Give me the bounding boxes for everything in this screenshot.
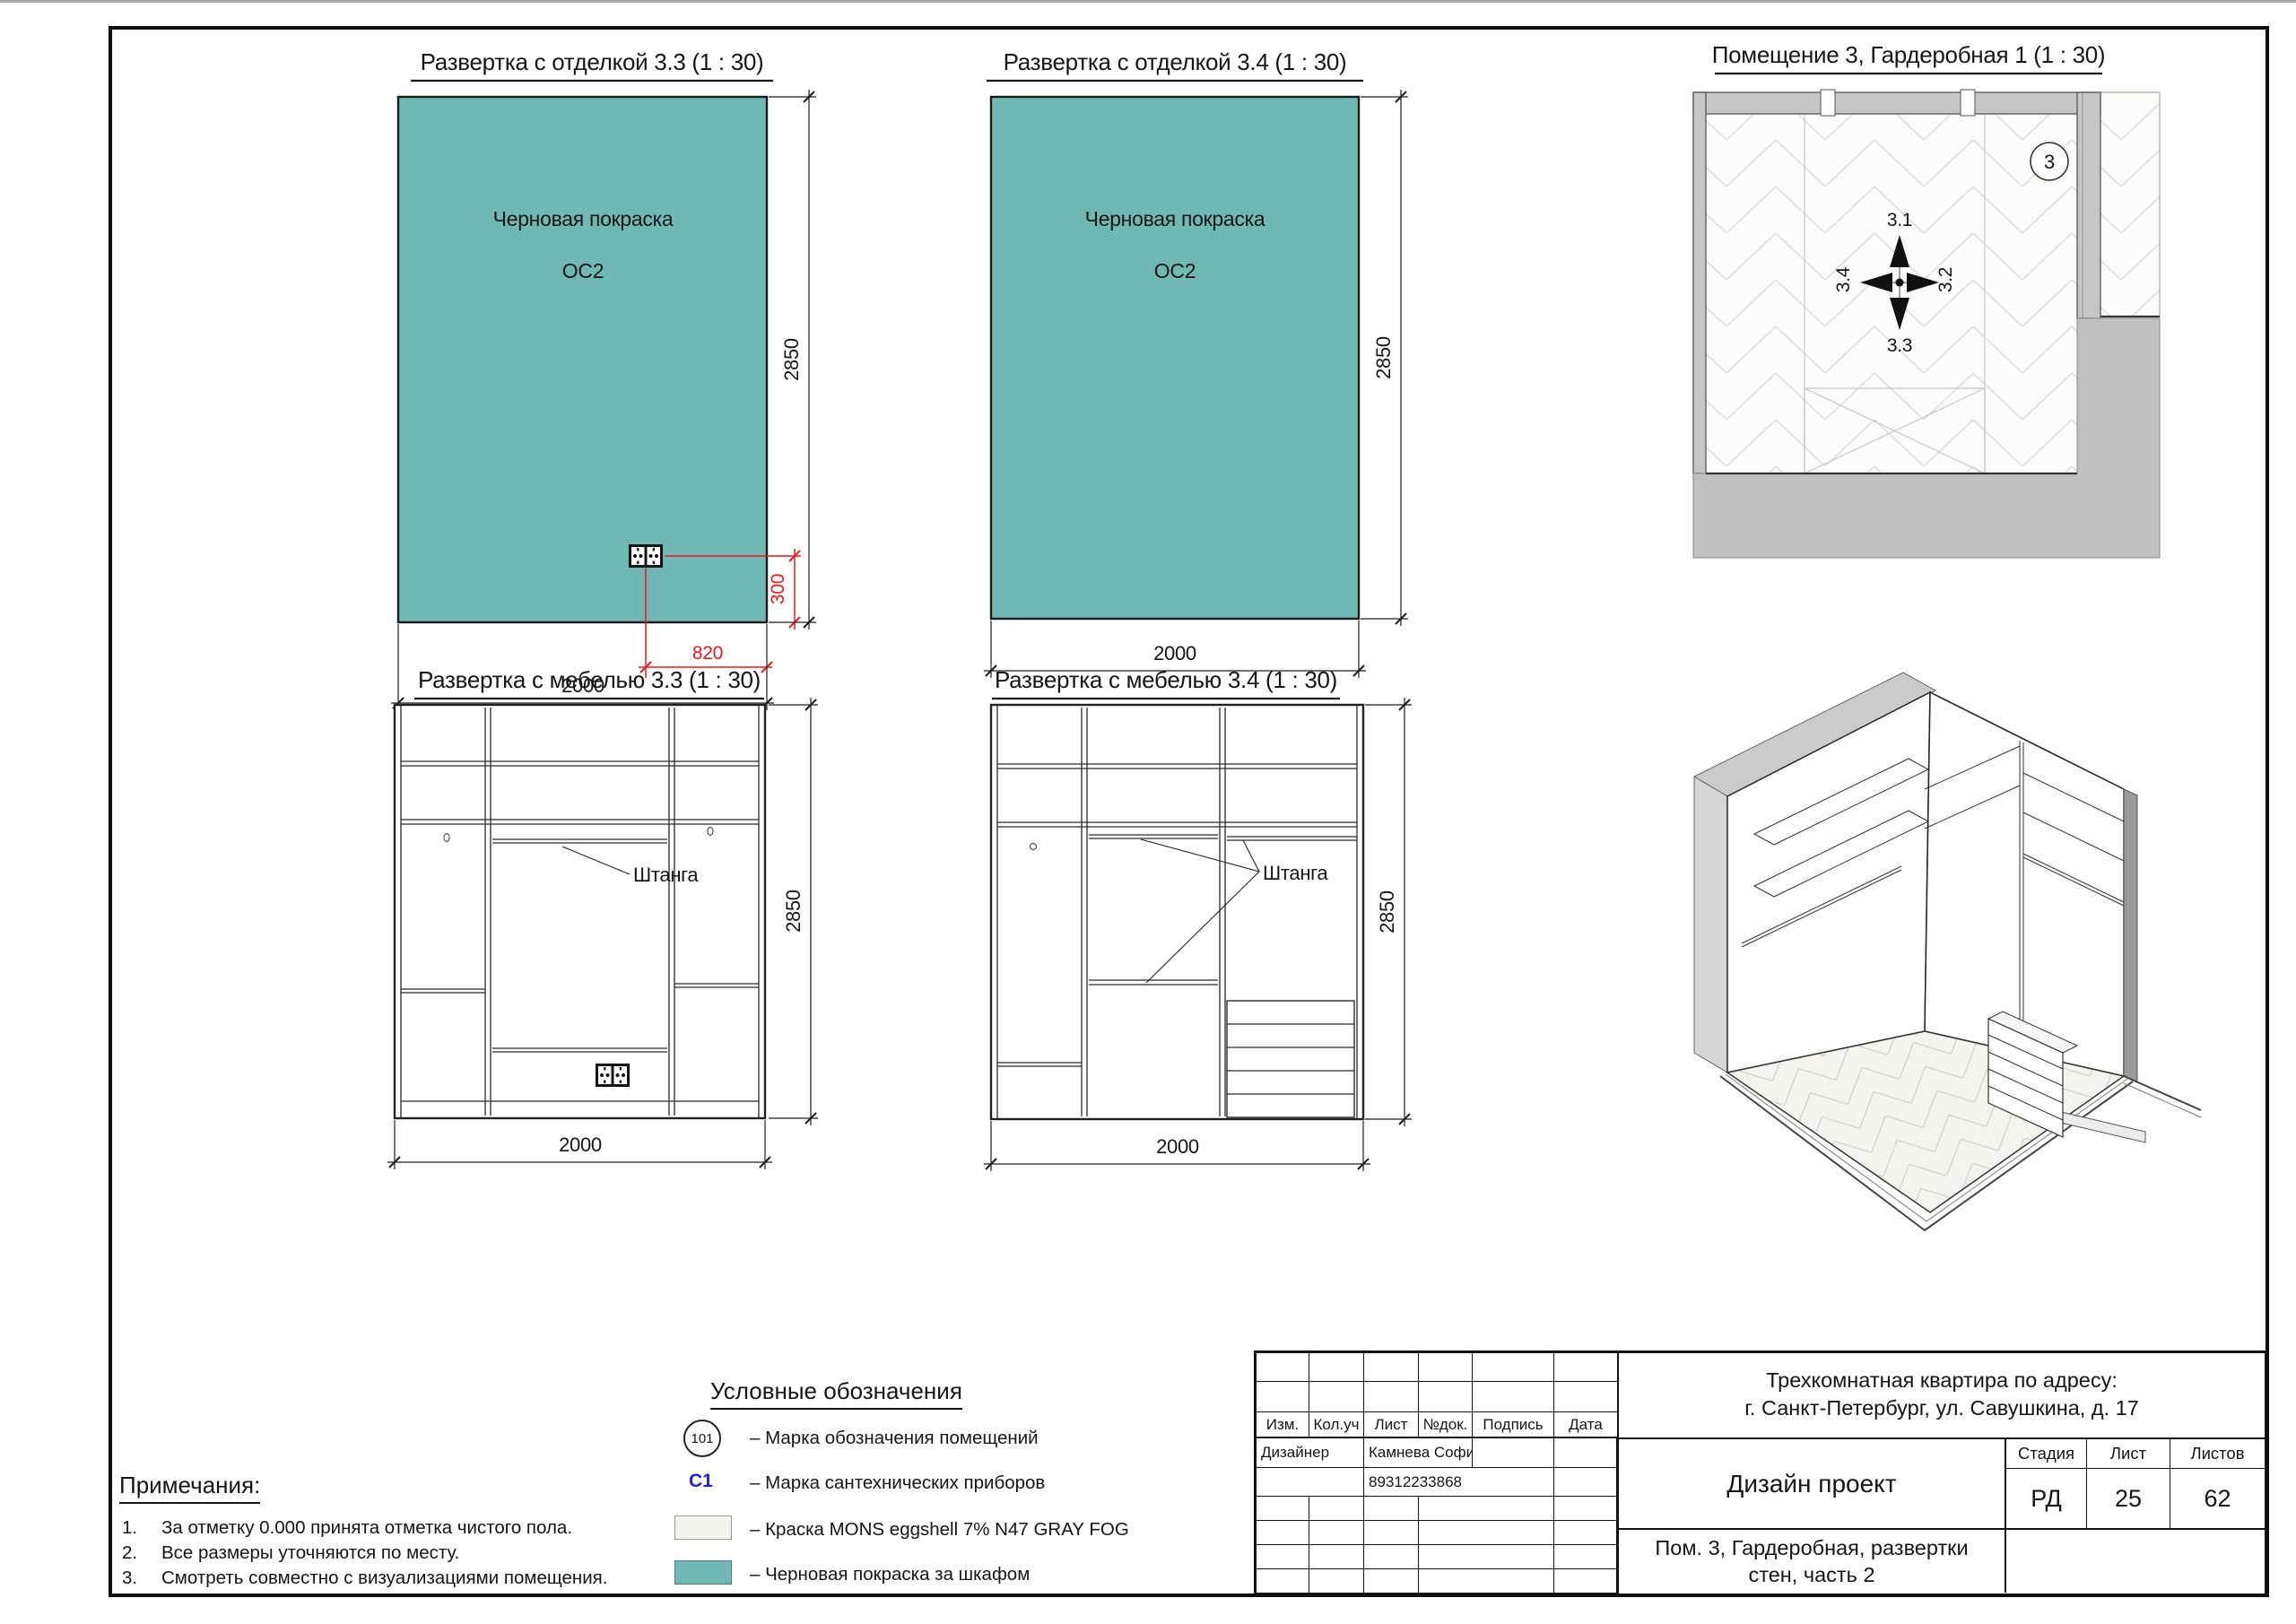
adjacent-floor bbox=[2100, 92, 2160, 317]
panel-room-plan: Помещение 3, Гардеробная 1 (1 : 30) 3 bbox=[1668, 36, 2278, 592]
legend-item-label: – Марка сантехнических приборов bbox=[750, 1472, 1045, 1494]
dim-width: 2000 bbox=[984, 1121, 1370, 1171]
note-number: 1. bbox=[122, 1517, 161, 1539]
rod-label: Штанга bbox=[1263, 862, 1328, 884]
teal-wall-fill bbox=[991, 97, 1359, 619]
note-number: 2. bbox=[122, 1542, 161, 1564]
dim-height: 2850 bbox=[769, 90, 816, 630]
wall-right bbox=[2077, 92, 2100, 318]
drawer-stack bbox=[1227, 1001, 1354, 1117]
project-address: Трехкомнатная квартира по адресу: г. Сан… bbox=[1619, 1353, 2265, 1439]
paint-code: ОС2 bbox=[562, 259, 604, 282]
svg-text:2850: 2850 bbox=[1376, 890, 1398, 934]
doc-title-line1: Пом. 3, Гардеробная, развертки bbox=[1619, 1534, 2005, 1561]
svg-text:3: 3 bbox=[2044, 151, 2055, 173]
doc-title-empty-cell bbox=[2006, 1530, 2265, 1593]
wardrobe-elevation bbox=[395, 705, 765, 1118]
note-text: Все размеры уточняются по месту. bbox=[161, 1542, 459, 1564]
dim-height: 2850 bbox=[1361, 90, 1408, 626]
drawing-sheet: { "sheet": { "panels": { "finish33": { "… bbox=[0, 0, 2296, 1624]
door-opening bbox=[1961, 90, 1975, 116]
dim-height: 2850 bbox=[1365, 698, 1412, 1126]
paint-code: ОС2 bbox=[1154, 259, 1196, 282]
dir-up-label: 3.1 bbox=[1887, 210, 1912, 230]
sheet-number: 25 bbox=[2087, 1469, 2170, 1528]
dim-height: 2850 bbox=[769, 698, 818, 1125]
note-text: Смотреть совместно с визуализациями поме… bbox=[161, 1568, 607, 1589]
panel-title: Развертка с отделкой 3.3 (1 : 30) bbox=[421, 48, 764, 75]
address-line2: г. Санкт-Петербург, ул. Савушкина, д. 17 bbox=[1619, 1394, 2265, 1422]
panel-axonometric bbox=[1668, 655, 2260, 1264]
axonometric-drawing bbox=[1694, 673, 2201, 1230]
notes-title: Примечания: bbox=[119, 1472, 260, 1504]
note-item: 2. Все размеры уточняются по месту. bbox=[122, 1542, 459, 1564]
legend-item-label: – Черновая покраска за шкафом bbox=[750, 1564, 1030, 1585]
door-opening bbox=[1821, 90, 1835, 116]
dim-width: 2000 bbox=[387, 1120, 772, 1169]
designer-name: Камнева София bbox=[1364, 1438, 1473, 1468]
designer-label: Дизайнер bbox=[1257, 1438, 1364, 1468]
panel-finish-33: Развертка с отделкой 3.3 (1 : 30) Чернов… bbox=[377, 36, 879, 735]
legend-title: Условные обозначения bbox=[710, 1377, 962, 1410]
legend-item-label: – Марка обозначения помещений bbox=[750, 1428, 1039, 1449]
svg-text:2000: 2000 bbox=[559, 1133, 602, 1156]
wall-left bbox=[1693, 92, 1706, 473]
screen-top-edge bbox=[0, 0, 2296, 3]
panel-title: Помещение 3, Гардеробная 1 (1 : 30) bbox=[1712, 41, 2106, 68]
address-line1: Трехкомнатная квартира по адресу: bbox=[1619, 1367, 2265, 1394]
sliding-door-panel bbox=[2061, 1112, 2145, 1142]
note-number: 3. bbox=[122, 1568, 161, 1589]
svg-text:2850: 2850 bbox=[1372, 336, 1395, 379]
paint-swatch-icon bbox=[674, 1515, 732, 1540]
sheets-label: Листов bbox=[2170, 1439, 2265, 1469]
doc-title-line2: стен, часть 2 bbox=[1619, 1561, 2005, 1588]
plumbing-mark-icon: С1 bbox=[689, 1471, 713, 1492]
note-item: 1. За отметку 0.000 принята отметка чист… bbox=[122, 1517, 572, 1539]
svg-text:2850: 2850 bbox=[782, 890, 804, 933]
col-dok: №док. bbox=[1419, 1412, 1473, 1438]
dir-right-label: 3.2 bbox=[1935, 267, 1956, 292]
panel-finish-34: Развертка с отделкой 3.4 (1 : 30) Чернов… bbox=[969, 36, 1489, 735]
doc-title: Пом. 3, Гардеробная, развертки стен, час… bbox=[1619, 1530, 2006, 1593]
teal-swatch-icon bbox=[674, 1560, 732, 1585]
col-data: Дата bbox=[1554, 1412, 1617, 1438]
col-koluch: Кол.уч bbox=[1309, 1412, 1364, 1438]
sheet-label: Лист bbox=[2087, 1439, 2170, 1469]
panel-title: Развертка с мебелью 3.4 (1 : 30) bbox=[995, 666, 1337, 693]
wall-top bbox=[1693, 92, 2100, 114]
panel-furniture-34: Развертка с мебелью 3.4 (1 : 30) Штанга bbox=[969, 659, 1525, 1215]
socket-outlet-icon bbox=[629, 544, 663, 568]
panel-furniture-33: Развертка с мебелью 3.3 (1 : 30) Штанга bbox=[377, 659, 897, 1215]
room-mark-icon: 101 bbox=[683, 1420, 721, 1457]
col-podpis: Подпись bbox=[1473, 1412, 1554, 1438]
room-marker: 3 bbox=[2031, 143, 2068, 180]
col-izm: Изм. bbox=[1257, 1412, 1309, 1438]
revision-table: Изм. Кол.уч Лист №док. Подпись Дата Диза… bbox=[1257, 1353, 1619, 1594]
note-item: 3. Смотреть совместно с визуализациями п… bbox=[122, 1568, 607, 1589]
title-block: Изм. Кол.уч Лист №док. Подпись Дата Диза… bbox=[1254, 1350, 2267, 1596]
col-list: Лист bbox=[1364, 1412, 1419, 1438]
rod-label: Штанга bbox=[633, 864, 699, 886]
dir-left-label: 3.4 bbox=[1833, 266, 1854, 292]
panel-title: Развертка с мебелью 3.3 (1 : 30) bbox=[418, 666, 761, 693]
room-mark-number: 101 bbox=[691, 1431, 713, 1446]
stage-label: Стадия bbox=[2006, 1439, 2087, 1469]
teal-wall-fill bbox=[398, 97, 767, 622]
sheets-total: 62 bbox=[2170, 1469, 2265, 1528]
wardrobe-elevation bbox=[991, 705, 1363, 1119]
stage-value: РД bbox=[2006, 1469, 2087, 1528]
dir-down-label: 3.3 bbox=[1887, 335, 1912, 356]
floor-plan-drawing bbox=[1693, 90, 2160, 558]
panel-title: Развертка с отделкой 3.4 (1 : 30) bbox=[1004, 48, 1347, 75]
paint-label: Черновая покраска bbox=[493, 207, 674, 230]
designer-phone: 89312233868 bbox=[1364, 1468, 1473, 1497]
dim-300: 300 bbox=[768, 574, 788, 604]
legend-item-label: – Краска MONS eggshell 7% N47 GRAY FOG bbox=[750, 1519, 1129, 1541]
project-type: Дизайн проект bbox=[1619, 1439, 2006, 1528]
stage-table: Стадия Лист Листов РД 25 62 bbox=[2006, 1439, 2265, 1528]
svg-text:2850: 2850 bbox=[780, 338, 803, 381]
socket-outlet-icon bbox=[596, 1064, 630, 1087]
note-text: За отметку 0.000 принята отметка чистого… bbox=[161, 1517, 572, 1539]
room-floor bbox=[1706, 114, 2077, 473]
paint-label: Черновая покраска bbox=[1085, 207, 1265, 230]
svg-text:2000: 2000 bbox=[1156, 1135, 1199, 1158]
